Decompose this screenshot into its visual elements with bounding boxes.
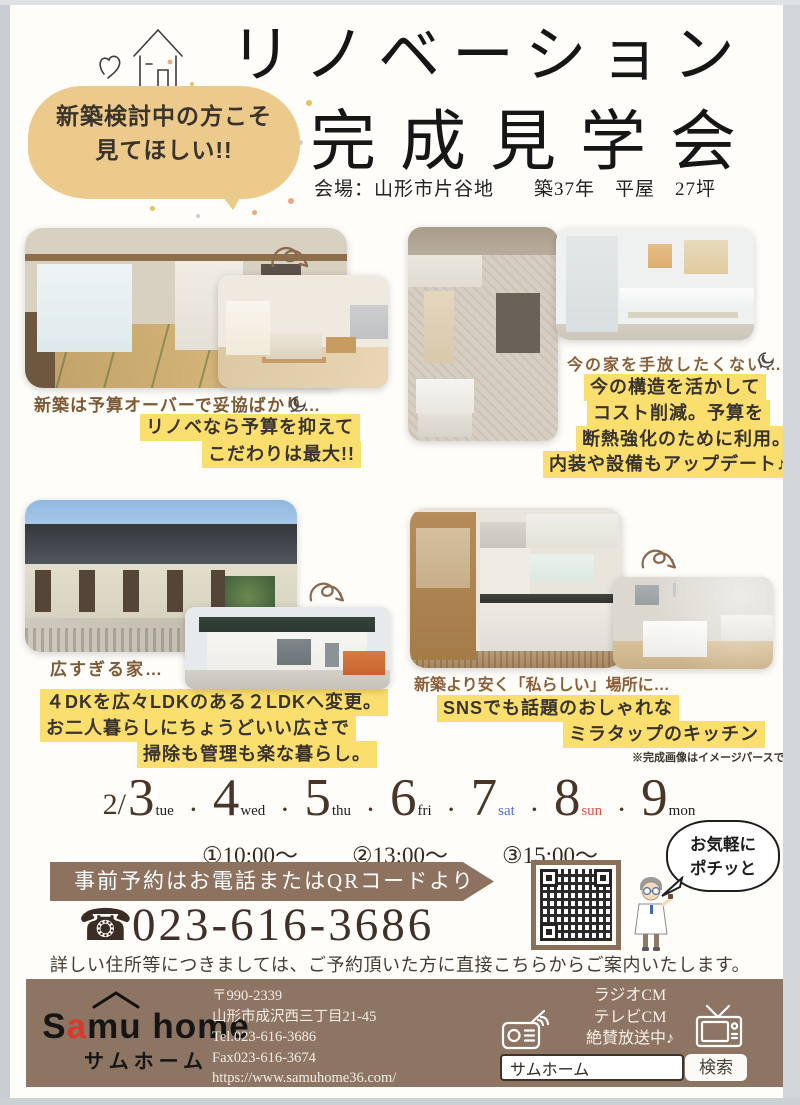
fax-number: Fax023-616-3674 — [212, 1048, 396, 1069]
date-weekday: mon — [669, 803, 696, 820]
page-title-line2: 完成見学会 — [310, 88, 760, 184]
date-number: 4 — [213, 772, 240, 825]
reservation-note: 詳しい住所等につきましては、ご予約頂いた方に直接こちらからご案内いたします。 — [15, 951, 785, 977]
highlight-budget-1: リノベなら予算を抑えて — [140, 414, 360, 441]
scribble-icon — [756, 350, 776, 370]
date-weekday: wed — [240, 803, 265, 820]
highlight-kitchen-1: SNSでも話題のおしゃれな — [437, 695, 679, 722]
highlight-keep-3: 断熱強化のために利用。 — [576, 426, 797, 453]
highlight-keep-2: コスト削減。予算を — [587, 400, 770, 427]
month-prefix: 2/ — [103, 788, 126, 822]
highlight-size-3: 掃除も管理も楽な暮らし。 — [137, 741, 377, 768]
cta-bubble-line1: お気軽に — [668, 833, 778, 857]
date-number: 9 — [641, 772, 668, 825]
cm-line2: テレビCM — [562, 1007, 698, 1029]
caption-budget: 新築は予算オーバーで妥協ばかり… — [34, 391, 321, 416]
schedule-dates: 2/ 3 tue ・ 4 wed ・ 5 thu ・ 6 fri ・ 7 sat… — [15, 772, 785, 825]
photo-after-washroom — [556, 228, 754, 340]
date-separator: ・ — [526, 796, 543, 821]
date-weekday: sat — [498, 803, 515, 820]
render-disclaimer-note: ※完成画像はイメージパースです — [632, 749, 796, 765]
date-separator: ・ — [185, 796, 202, 821]
photo-before-washroom — [408, 227, 558, 441]
date-weekday: thu — [332, 803, 351, 820]
date-weekday: fri — [417, 803, 431, 820]
date-item: 8 sun — [554, 772, 602, 825]
date-weekday: sun — [581, 803, 602, 820]
intro-bubble-line1: 新築検討中の方こそ — [28, 99, 300, 133]
date-number: 6 — [390, 772, 417, 825]
intro-bubble-line2: 見てほしい!! — [28, 133, 300, 167]
date-number: 7 — [471, 772, 498, 825]
date-separator: ・ — [362, 796, 379, 821]
date-item: 9 mon — [641, 772, 695, 825]
date-number: 8 — [554, 772, 581, 825]
date-separator: ・ — [613, 796, 630, 821]
page-edge — [783, 0, 800, 1105]
intro-bubble-tail — [206, 178, 254, 212]
caption-keep: 今の家を手放したくない… — [567, 351, 783, 375]
date-number: 5 — [304, 772, 331, 825]
postal-code: 〒990-2339 — [212, 986, 396, 1007]
page-edge — [0, 1098, 800, 1105]
radio-icon — [500, 1006, 554, 1052]
highlight-budget-2: こだわりは最大!! — [202, 441, 361, 468]
flyer-page: リノベーション 完成見学会 会場：山形市片谷地 築37年 平屋 27坪 新築検討… — [0, 0, 800, 1105]
date-separator: ・ — [443, 796, 460, 821]
date-item: 7 sat — [471, 772, 515, 825]
confetti-dot — [196, 214, 200, 218]
page-edge — [0, 0, 10, 1105]
date-item: 6 fri — [390, 772, 432, 825]
highlight-keep-4: 内装や設備もアップデート♪ — [543, 451, 793, 478]
qr-code — [531, 860, 621, 950]
loop-arrow-icon — [306, 578, 346, 606]
highlight-keep-1: 今の構造を活かして — [584, 374, 766, 401]
confetti-dot — [288, 198, 294, 204]
highlight-kitchen-2: ミラタップのキッチン — [563, 721, 765, 748]
search-button[interactable]: 検索 — [685, 1054, 747, 1081]
tv-icon — [694, 1004, 744, 1051]
caption-size: 広すぎる家… — [50, 655, 164, 680]
photo-after-kitchen — [613, 577, 773, 669]
address-block: 〒990-2339 山形市成沢西三丁目21-45 Tel.023-616-368… — [212, 986, 396, 1089]
confetti-dot — [150, 206, 155, 211]
date-number: 3 — [128, 772, 155, 825]
highlight-size-1: ４DKを広々LDKのある２LDKへ変更。 — [40, 689, 388, 716]
cm-line3: 絶賛放送中♪ — [562, 1028, 698, 1050]
page-title-line1: リノベーション — [230, 4, 747, 94]
website-url: https://www.samuhome36.com/ — [212, 1068, 396, 1089]
date-separator: ・ — [276, 796, 293, 821]
date-item: 3 tue — [128, 772, 174, 825]
cta-bubble-tail — [660, 876, 684, 898]
street-address: 山形市成沢西三丁目21-45 — [212, 1007, 396, 1028]
search-input[interactable] — [500, 1054, 684, 1081]
tel-number: Tel.023-616-3686 — [212, 1027, 396, 1048]
venue-text: 会場：山形市片谷地 築37年 平屋 27坪 — [314, 174, 716, 201]
loop-arrow-icon — [638, 545, 678, 573]
logo-part1: S — [42, 1007, 66, 1046]
cm-line1: ラジオCM — [562, 985, 698, 1007]
photo-after-living-room — [218, 275, 388, 388]
phone-icon: ☎ — [78, 904, 133, 948]
cta-bubble-line2: ポチッと — [668, 857, 778, 881]
scribble-icon — [288, 394, 308, 414]
date-item: 5 thu — [304, 772, 351, 825]
photo-before-kitchen — [410, 508, 622, 668]
highlight-size-2: お二人暮らしにちょうどいい広さで — [40, 715, 356, 742]
footer-bar: Samu home サムホーム 〒990-2339 山形市成沢西三丁目21-45… — [26, 979, 783, 1087]
photo-after-exterior — [185, 607, 390, 689]
loop-arrow-icon — [268, 242, 310, 272]
date-weekday: tue — [155, 803, 173, 820]
date-item: 4 wed — [213, 772, 266, 825]
reservation-banner: 事前予約はお電話またはQRコードより — [50, 862, 494, 901]
page-edge — [0, 0, 800, 5]
logo-accent-letter: a — [67, 1007, 87, 1046]
caption-kitchen: 新築より安く「私らしい」場所に… — [414, 671, 670, 695]
cm-text: ラジオCM テレビCM 絶賛放送中♪ — [562, 985, 698, 1050]
phone-number: 023-616-3686 — [132, 902, 434, 949]
intro-speech-bubble: 新築検討中の方こそ 見てほしい!! — [28, 86, 300, 199]
